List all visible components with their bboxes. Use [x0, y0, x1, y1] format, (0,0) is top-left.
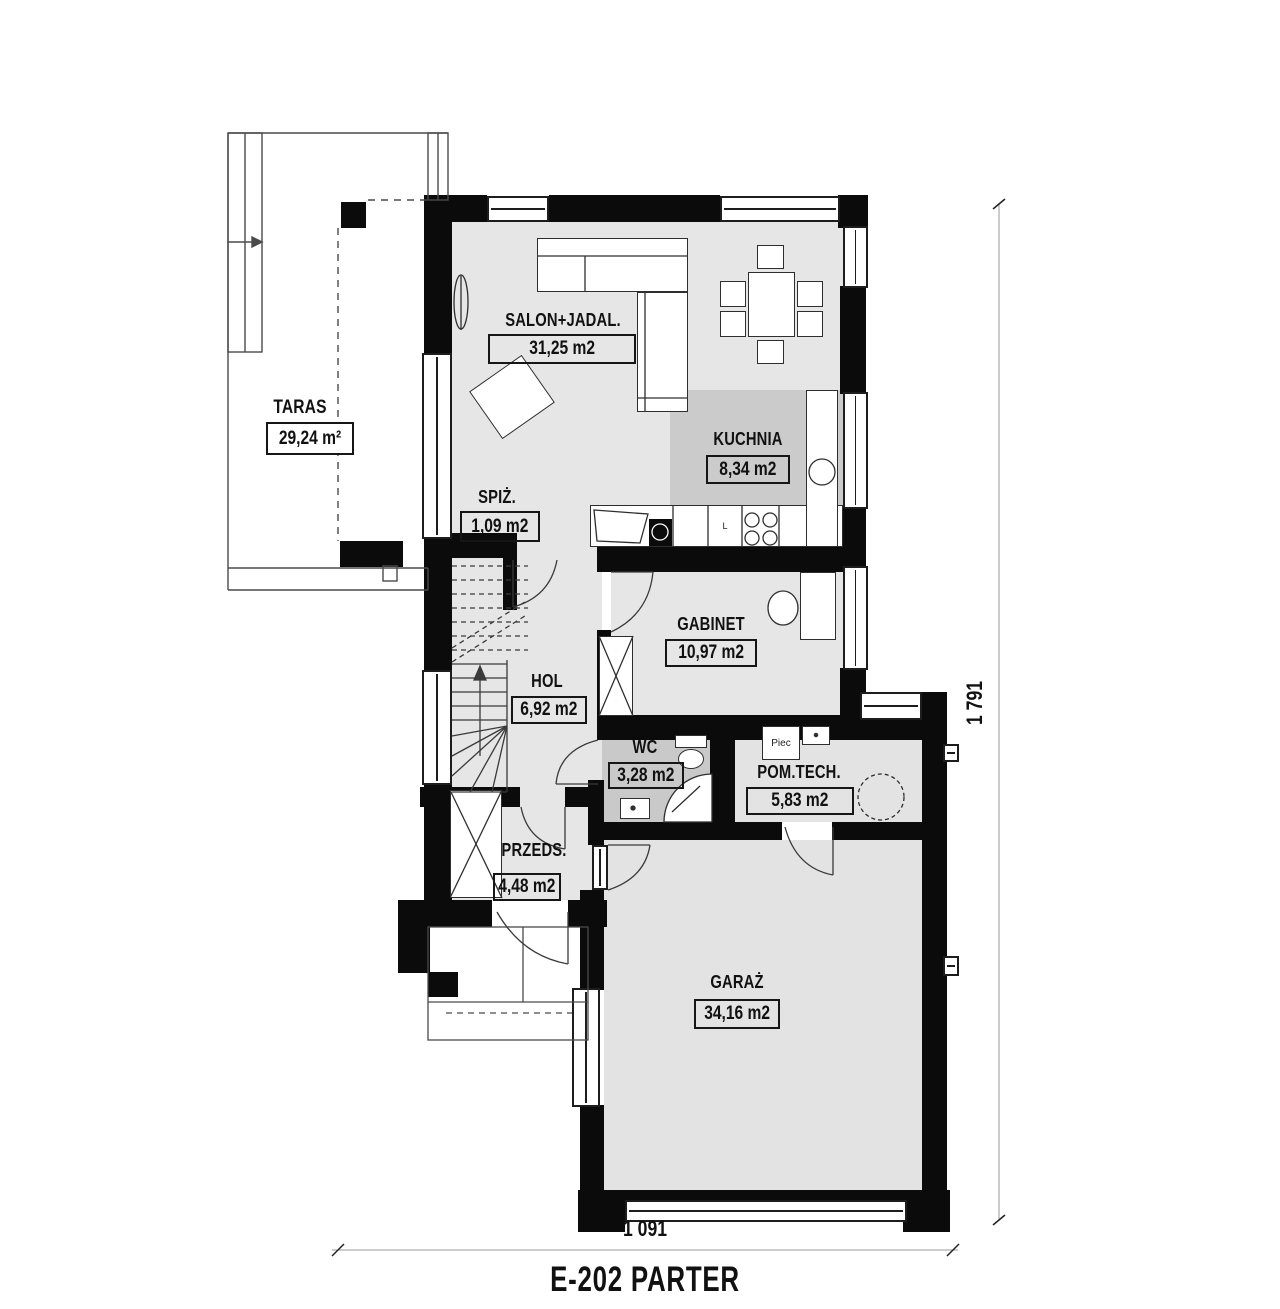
room-area-gabinet: 10,97 m2: [665, 639, 757, 667]
room-area-przeds: 4,48 m2: [493, 873, 561, 901]
room-label-pomtech: POM.TECH.: [754, 762, 844, 783]
room-label-kuchnia: KUCHNIA: [699, 429, 797, 450]
wall-segment: [424, 195, 487, 222]
area-value: 34,16 m2: [704, 1003, 770, 1025]
kitchen-counter-right: [806, 390, 838, 547]
area-value: 4,48 m2: [498, 876, 555, 898]
sofa-chaise: [637, 292, 688, 412]
room-label-salon: SALON+JADAL.: [502, 310, 625, 331]
terrace-outline: [228, 133, 448, 590]
window: [572, 988, 600, 1107]
area-value: 8,34 m2: [719, 459, 776, 481]
room-area-spiz: 1,09 m2: [460, 511, 540, 542]
room-area-garaz: 34,16 m2: [694, 999, 780, 1029]
chair: [797, 311, 823, 337]
window: [720, 196, 840, 222]
chair: [757, 245, 784, 269]
area-value: 5,83 m2: [771, 790, 828, 812]
door-frame: [592, 845, 608, 890]
furnace-label: Piec: [762, 726, 800, 760]
wall-segment: [549, 195, 720, 222]
chair: [720, 311, 746, 337]
window: [860, 692, 922, 720]
room-area-salon: 31,25 m2: [488, 334, 636, 364]
wall-segment: [398, 912, 430, 973]
room-label-garaz: GARAŻ: [703, 972, 772, 993]
room-label-hol: HOL: [517, 671, 578, 692]
chair: [757, 340, 784, 364]
room-label-gabinet: GABINET: [662, 614, 760, 635]
area-value: 31,25 m2: [529, 338, 595, 360]
wall-segment: [710, 822, 782, 840]
terrace-pillar: [341, 202, 366, 228]
area-value: 10,97 m2: [678, 642, 744, 664]
dimension-height: 1 791: [962, 651, 988, 755]
page-title: E-202 PARTER: [497, 1260, 793, 1300]
room-area-wc: 3,28 m2: [608, 762, 684, 789]
wall-segment: [840, 286, 866, 394]
terrace-door: [422, 353, 452, 539]
room-label-spiz: SPIŻ.: [456, 487, 538, 508]
porch-pillar: [428, 972, 458, 997]
room-area-pomtech: 5,83 m2: [746, 787, 854, 815]
room-area-taras: 29,24 m²: [266, 422, 354, 455]
wall-segment: [580, 890, 604, 990]
area-value: 1,09 m2: [471, 516, 528, 538]
area-value: 29,24 m²: [279, 428, 341, 450]
desk: [800, 572, 836, 640]
window: [843, 226, 868, 288]
window: [487, 196, 549, 222]
wall-segment: [340, 541, 403, 567]
room-area-kuchnia: 8,34 m2: [706, 455, 790, 484]
vent-marker: [943, 956, 959, 976]
floor-plan: TARAS 29,24 m² SALON+JADAL. 31,25 m2 KUC…: [0, 0, 1280, 1309]
room-label-taras: TARAS: [251, 397, 349, 419]
window: [422, 670, 452, 785]
wall-segment: [565, 787, 604, 807]
sofa: [537, 238, 688, 292]
area-value: 6,92 m2: [520, 699, 577, 721]
vent-marker: [943, 744, 959, 762]
room-label-wc: WC: [615, 737, 676, 758]
chair: [720, 281, 746, 307]
wall-segment: [424, 222, 452, 355]
wall-segment: [580, 1105, 604, 1190]
wall-segment: [832, 822, 922, 840]
washbasin: [620, 798, 650, 819]
room-label-przeds: PRZEDS.: [500, 840, 567, 861]
dimension-width: 1 091: [585, 1216, 705, 1242]
wall-segment: [838, 195, 868, 228]
room-area-hol: 6,92 m2: [511, 696, 587, 724]
vent-box: [649, 519, 672, 546]
wall-segment: [710, 740, 735, 822]
wall-segment: [503, 556, 517, 610]
wall-segment: [597, 546, 866, 572]
shaft: [599, 636, 633, 716]
wall-segment: [903, 1190, 950, 1232]
dining-table: [748, 272, 795, 337]
washbasin: [802, 726, 830, 745]
area-value: 3,28 m2: [617, 765, 674, 787]
chair: [797, 281, 823, 307]
toilet-tank: [675, 735, 707, 748]
window: [843, 566, 868, 670]
wall-segment: [602, 822, 710, 840]
window: [843, 392, 868, 509]
fridge-label: L: [708, 505, 742, 547]
